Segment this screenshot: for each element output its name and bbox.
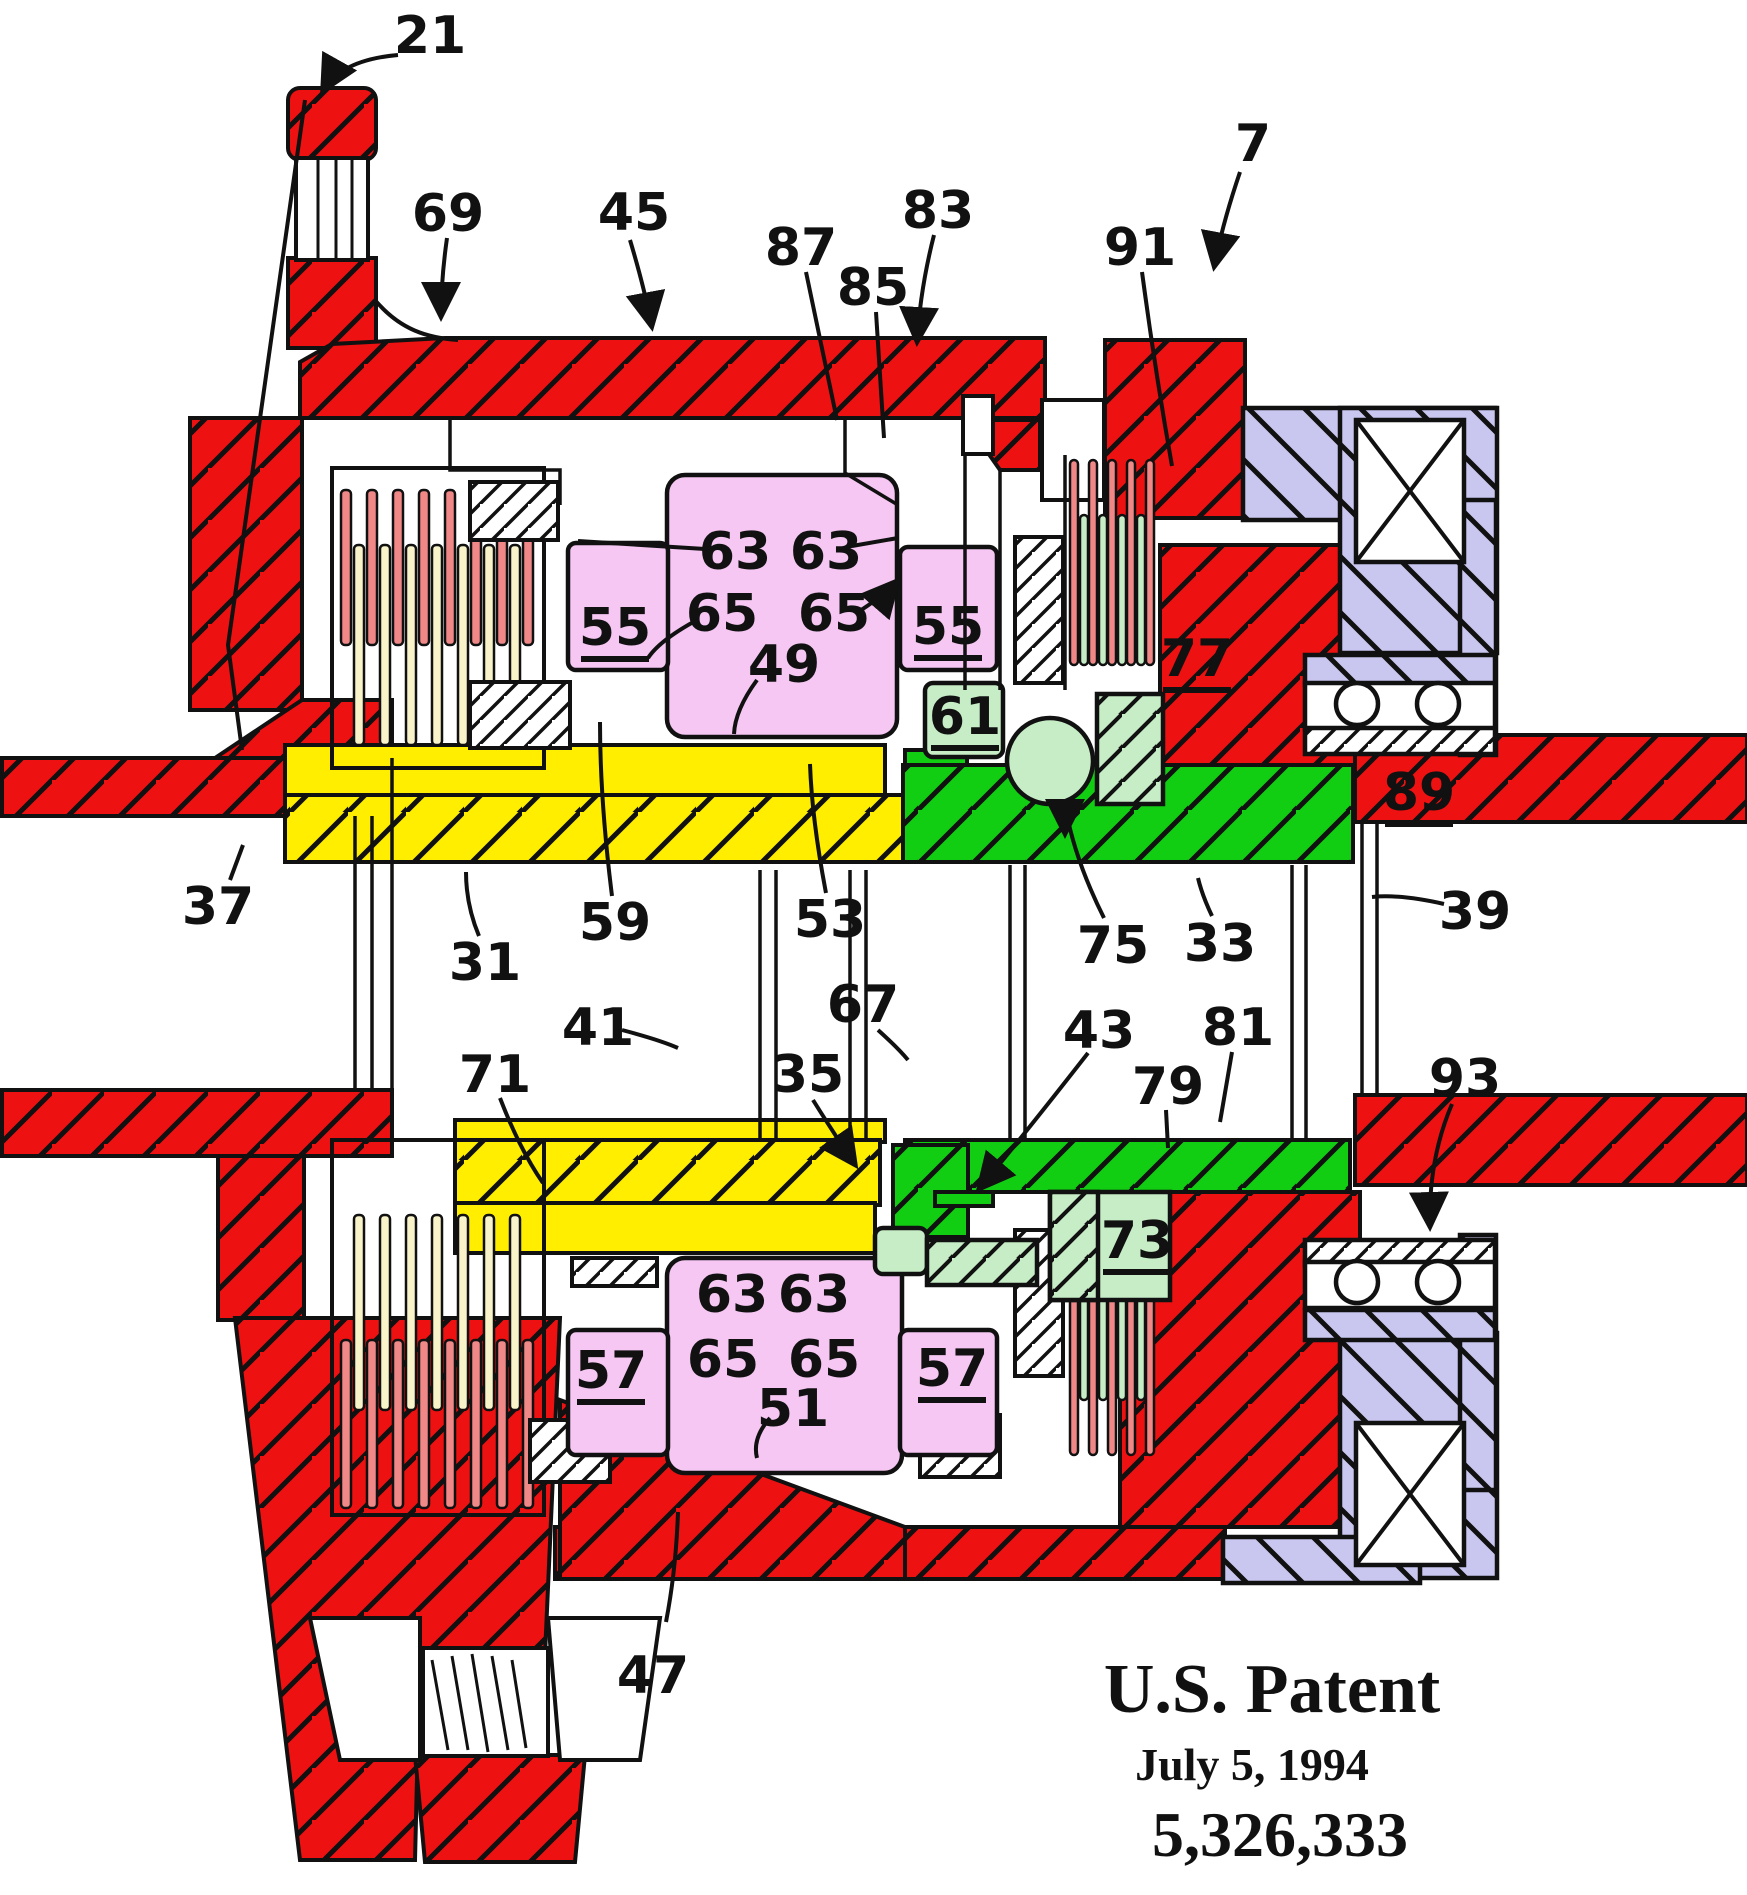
clutch-plate — [367, 1340, 377, 1508]
clutch-plate — [341, 1340, 351, 1508]
clutch-plate — [1080, 515, 1088, 665]
clutch-plate — [1146, 460, 1154, 665]
clutch-plate — [380, 545, 390, 745]
green-cam-rings — [893, 750, 1353, 1237]
clutch-plate — [354, 1215, 364, 1410]
clutch-plate — [1070, 460, 1078, 665]
clutch-plate — [406, 545, 416, 745]
reference-label: 63 — [696, 1265, 768, 1325]
top-bolt-shank — [296, 158, 368, 260]
reference-label: 51 — [757, 1379, 829, 1439]
clutch-plate — [1127, 460, 1135, 665]
bearing-ball — [1336, 1261, 1378, 1303]
case-left-wall — [190, 418, 302, 710]
reference-label: 21 — [394, 6, 466, 66]
clutch-plate — [1118, 515, 1126, 665]
reference-label: 31 — [449, 933, 521, 993]
clutch-plate — [1108, 460, 1116, 665]
reference-label: 41 — [562, 998, 634, 1058]
clutch-plate — [432, 1215, 442, 1410]
reference-label: 63 — [778, 1265, 850, 1325]
reference-label: 91 — [1104, 218, 1176, 278]
reference-label: 79 — [1132, 1057, 1204, 1117]
reference-label: 55 — [579, 598, 651, 658]
clutch-plate — [471, 1340, 481, 1508]
reference-label: 65 — [687, 1330, 759, 1390]
clutch-plate — [445, 490, 455, 645]
clutch-plate — [380, 1215, 390, 1410]
reference-label: 57 — [916, 1339, 988, 1399]
reference-label: 93 — [1429, 1049, 1501, 1109]
reference-label: 89 — [1383, 763, 1455, 823]
bearing-ball — [1336, 683, 1378, 725]
reference-label: 53 — [794, 890, 866, 950]
reference-label: 77 — [1161, 629, 1233, 689]
reference-label: 37 — [182, 877, 254, 937]
clutch-plate — [393, 1340, 403, 1508]
clutch-plate — [497, 1340, 507, 1508]
clutch-plate — [432, 545, 442, 745]
reference-label: 87 — [765, 218, 837, 278]
reference-label: 81 — [1202, 998, 1274, 1058]
clutch-plate — [1089, 460, 1097, 665]
bearing-ball — [1417, 1261, 1459, 1303]
reference-label: 67 — [827, 975, 899, 1035]
clutch-plate — [354, 545, 364, 745]
clutch-plate — [484, 1215, 494, 1410]
reference-label: 35 — [772, 1045, 844, 1105]
clutch-plate — [510, 1215, 520, 1410]
patent-cross-section-drawing: 2176945878583916363656555554961778937315… — [0, 0, 1747, 1895]
patent-date: July 5, 1994 — [1135, 1739, 1369, 1790]
reference-label: 71 — [459, 1045, 531, 1105]
clutch-plate — [419, 1340, 429, 1508]
patent-stamp: U.S. Patent July 5, 1994 5,326,333 — [1104, 1651, 1440, 1870]
reference-label: 61 — [929, 687, 1001, 747]
reference-label: 47 — [617, 1646, 689, 1706]
reference-label: 73 — [1101, 1211, 1173, 1271]
clutch-plate — [393, 490, 403, 645]
reference-label: 33 — [1184, 914, 1256, 974]
case-top-band — [300, 338, 1045, 418]
top-bolt-seat — [288, 258, 376, 348]
patent-figure-page: 2176945878583916363656555554961778937315… — [0, 0, 1747, 1895]
bearing-ball — [1417, 683, 1459, 725]
patent-title: U.S. Patent — [1104, 1651, 1440, 1728]
pin-87 — [963, 396, 993, 454]
clutch-plate — [367, 490, 377, 645]
reference-label: 75 — [1077, 916, 1149, 976]
reference-label: 63 — [699, 522, 771, 582]
clutch-plate — [406, 1215, 416, 1410]
reference-label: 55 — [912, 597, 984, 657]
reference-label: 59 — [579, 893, 651, 953]
reference-label: 85 — [837, 258, 909, 318]
clutch-plate — [458, 1215, 468, 1410]
clutch-plate — [341, 490, 351, 645]
reference-label: 45 — [598, 183, 670, 243]
ball-75 — [1007, 718, 1093, 804]
reference-label: 7 — [1235, 114, 1271, 174]
lower-green-ring — [905, 1140, 1350, 1192]
clutch-plate — [1137, 515, 1145, 665]
patent-number: 5,326,333 — [1152, 1799, 1408, 1870]
reference-label: 83 — [902, 181, 974, 241]
reference-label: 43 — [1063, 1001, 1135, 1061]
clutch-plate — [458, 545, 468, 745]
upper-hub-plate — [285, 745, 885, 797]
clutch-plate — [445, 1340, 455, 1508]
reference-label: 69 — [412, 184, 484, 244]
reference-label: 49 — [748, 635, 820, 695]
clutch-plate — [419, 490, 429, 645]
spacer-59 — [470, 682, 570, 748]
piston-upper — [1015, 537, 1063, 683]
reference-label: 63 — [790, 522, 862, 582]
lower-hub-hatched — [455, 1140, 880, 1205]
right-shaft-bottom-wall — [1355, 1095, 1747, 1185]
reference-label: 57 — [575, 1341, 647, 1401]
clutch-plate — [1099, 515, 1107, 665]
reference-label: 39 — [1439, 882, 1511, 942]
